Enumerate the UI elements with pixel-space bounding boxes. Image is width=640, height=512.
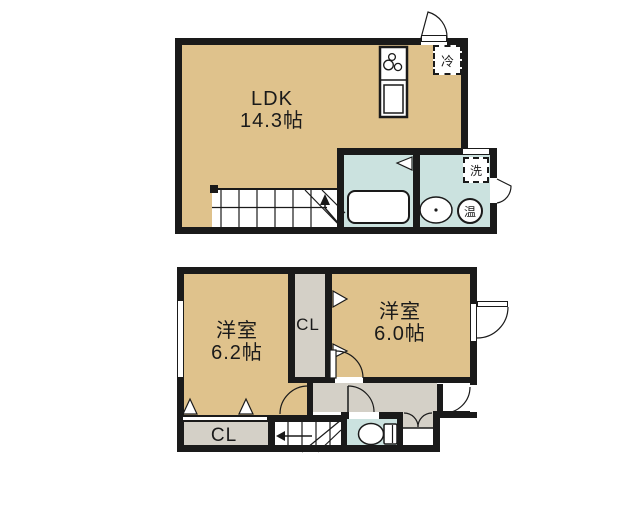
ldk-label: LDK 14.3帖: [202, 88, 342, 132]
water-heater-label: 温: [464, 203, 476, 220]
washroom-window: [462, 148, 490, 155]
stairs-2f: [212, 188, 337, 227]
washing-machine-icon: 洗: [463, 157, 489, 183]
wall-2f-right: [461, 38, 468, 155]
bedroom-right-door-opening: [335, 377, 363, 383]
wall-toilet-right: [397, 412, 403, 452]
ldk-area: 14.3帖: [202, 110, 342, 132]
closet-sliding-door: [182, 416, 268, 421]
wall-bedroom-left-hall: [307, 383, 313, 415]
water-heater-icon: 温: [457, 198, 483, 224]
ldk-name: LDK: [202, 88, 342, 110]
entrance-door-leaf: [437, 384, 443, 412]
balcony-door-swing-arc: [477, 307, 508, 338]
closet-bottom-label: CL: [196, 425, 252, 447]
washroom-door-opening: [490, 178, 497, 203]
wall-nook-bottom: [437, 411, 477, 418]
floor-plan: 冷 洗 温: [0, 0, 640, 512]
wall-closet-stairs: [268, 422, 275, 452]
refrigerator-icon: 冷: [433, 45, 462, 75]
balcony-door-leaf: [477, 301, 508, 307]
shoe-cabinet-area: [403, 412, 433, 428]
bathtub-icon: [347, 190, 410, 224]
entrance-door-nook: [443, 383, 470, 411]
washroom-door-swing-arc: [497, 179, 511, 203]
bedroom-right-area: 6.0帖: [330, 323, 470, 345]
bedroom-left-area: 6.2帖: [167, 342, 307, 364]
toilet-door-opening: [349, 412, 379, 419]
refrigerator-label: 冷: [441, 51, 454, 70]
wall-2f-ldk-bath: [337, 148, 344, 227]
wall-2f-bath-wash: [413, 148, 420, 227]
wall-genkan-right: [433, 411, 440, 452]
wall-2f-bottom: [175, 227, 497, 234]
bedroom-right-label: 洋室 6.0帖: [330, 301, 470, 345]
balcony-door-opening: [470, 303, 477, 342]
wall-stairs-toilet: [341, 415, 347, 452]
toilet-room: [347, 419, 397, 445]
entrance-door-opening: [470, 385, 477, 412]
closet-middle-label: CL: [285, 314, 331, 336]
entrance-genkan: [403, 429, 433, 445]
washing-machine-label: 洗: [470, 162, 482, 179]
wall-2f-left: [175, 38, 182, 234]
hallway: [313, 383, 437, 412]
kitchen-door-leaf: [421, 35, 447, 42]
bedroom-right-name: 洋室: [330, 301, 470, 323]
